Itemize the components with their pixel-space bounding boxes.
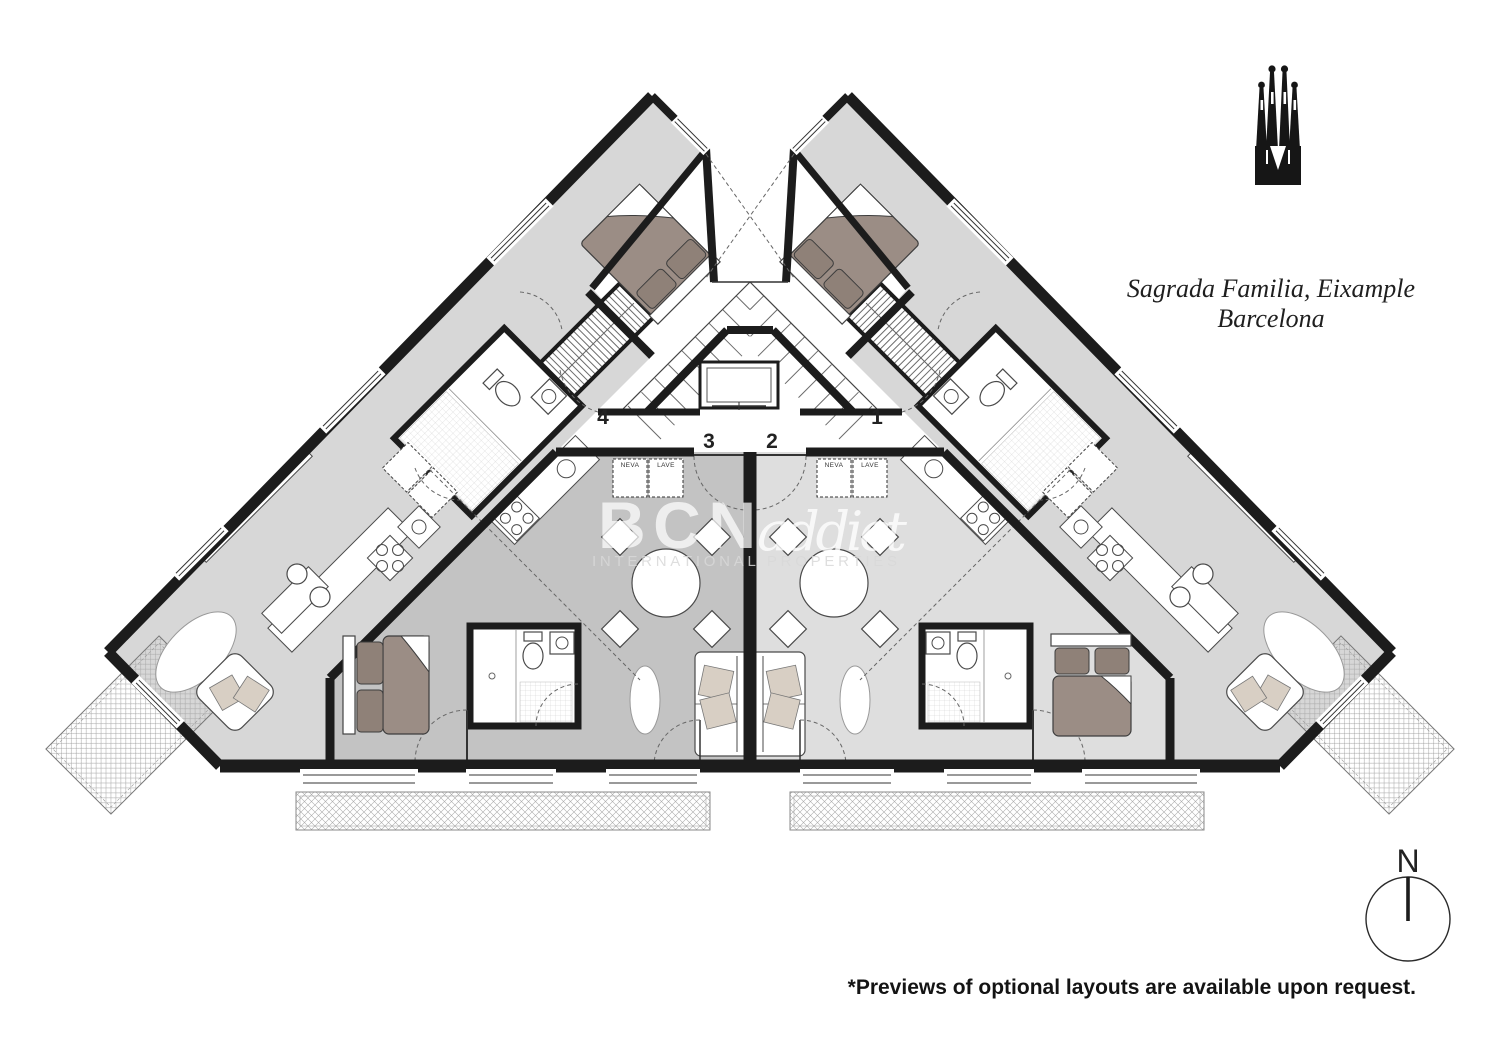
title-line-2: Barcelona [1217,304,1324,333]
title-line-1: Sagrada Familia, Eixample [1127,274,1415,303]
footnote: *Previews of optional layouts are availa… [848,976,1416,999]
floor-plan-page: BCN addict INTERNATIONAL PROPERTIES 4 3 … [0,0,1500,1055]
fridge-label: NEVA [621,462,640,469]
unit-label-2: 2 [766,430,778,453]
unit-label-3: 3 [703,430,715,453]
location-title: Sagrada Familia, Eixample Barcelona [1127,274,1415,333]
elevator [700,362,778,410]
north-label: N [1396,843,1419,879]
watermark: BCN addict INTERNATIONAL PROPERTIES [592,488,907,570]
washer-label: LAVE [861,462,879,469]
unit-label-4: 4 [597,406,609,429]
fridge-label: NEVA [825,462,844,469]
floor-plan-canvas: BCN addict INTERNATIONAL PROPERTIES 4 3 … [0,0,1500,1055]
unit-label-1: 1 [871,406,883,429]
washer-label: LAVE [657,462,675,469]
north-compass: N [1366,843,1450,961]
sagrada-familia-icon [1255,65,1301,185]
void-projection-x [706,154,794,278]
watermark-brand: BCN [598,488,770,562]
